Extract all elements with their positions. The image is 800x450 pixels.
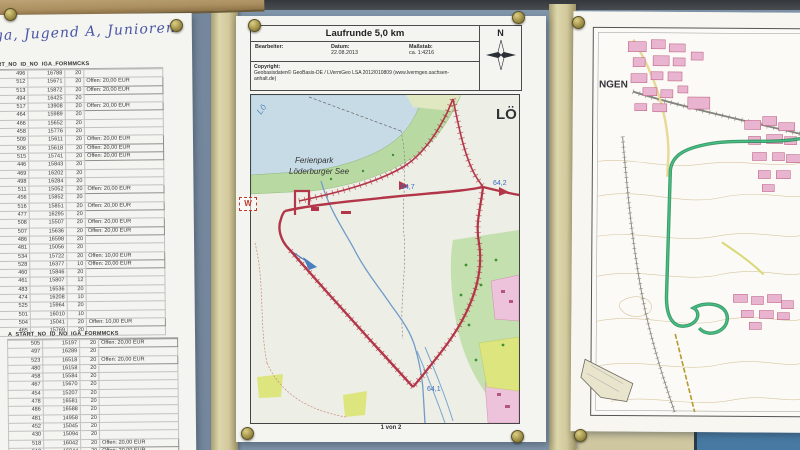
cell: 15872 [28, 86, 65, 95]
cell: 16295 [29, 211, 66, 220]
pin-icon [574, 429, 587, 442]
cell: 20 [81, 439, 100, 447]
cell: 481 [0, 244, 30, 253]
km-marker-64-2: 64,2 [493, 180, 507, 187]
cell: 20 [67, 318, 86, 326]
cell: 16598 [29, 236, 66, 245]
cell: 464 [0, 112, 28, 121]
cell: 15611 [28, 136, 65, 145]
cell: 15670 [43, 381, 80, 390]
cell: 20 [80, 414, 99, 422]
cell: 20 [66, 219, 85, 227]
cell: 467 [8, 382, 43, 391]
cell: 15618 [29, 144, 66, 153]
cell: 15852 [29, 194, 66, 203]
cell: 481 [8, 415, 43, 424]
cell: 16208 [30, 294, 67, 303]
cell: 15989 [28, 111, 65, 120]
cell: 20 [66, 227, 85, 235]
cell: 20 [80, 389, 99, 397]
cell: 516 [0, 203, 29, 212]
cell: 20 [66, 144, 85, 152]
cell: 20 [67, 244, 86, 252]
overview-map-sheet: NGEN [571, 11, 800, 433]
cell: 12 [67, 277, 86, 285]
cell: 15843 [29, 161, 66, 170]
left-table-1: ART_NO ID_NO IGA_FORMMCKS 49616788205121… [0, 59, 166, 336]
cell: 10 [67, 260, 86, 268]
cell: 461 [0, 278, 30, 287]
cell: 512 [0, 78, 28, 87]
cell: 10 [67, 310, 86, 318]
cell: 20 [65, 70, 84, 78]
cell: 15636 [29, 227, 66, 236]
cell: 20 [80, 422, 99, 430]
cell: 15851 [29, 203, 66, 212]
cell: 430 [9, 431, 44, 440]
cell: 15197 [43, 340, 80, 349]
cell: 474 [0, 294, 30, 303]
cell: 16588 [43, 406, 80, 415]
cell: 501 [0, 311, 30, 320]
map-title-block: Laufrunde 5,0 km Bearbeiter: Datum: 22.0… [250, 25, 522, 91]
cell: 486 [8, 406, 43, 415]
cell: 20 [65, 94, 84, 102]
cell: 20 [67, 269, 86, 277]
cell: 20 [80, 373, 99, 381]
cell: 20 [67, 302, 86, 310]
cell: 483 [0, 286, 30, 295]
cell: 509 [0, 137, 29, 146]
pin-icon [512, 11, 525, 24]
cell: 16010 [30, 310, 67, 319]
cell: 505 [8, 340, 43, 349]
left-table-2: A START_NO ID_NO IGA_FORMMCKS 5051519720… [7, 329, 179, 450]
cell: 508 [0, 220, 29, 229]
cell: 20 [66, 236, 85, 244]
cell: 452 [8, 423, 43, 432]
cell: 496 [0, 70, 28, 79]
cell: 15741 [29, 153, 66, 162]
cell: 15056 [30, 244, 67, 253]
results-sheet: ga, Jugend A, Junioren ART_NO ID_NO IGA_… [0, 13, 196, 450]
cell: 498 [0, 178, 29, 187]
pin-icon [241, 427, 254, 440]
overview-map-canvas: NGEN [571, 11, 800, 433]
cell: 20 [66, 211, 85, 219]
cell: 497 [8, 348, 43, 357]
pin-icon [4, 8, 17, 21]
cell: 20 [66, 169, 85, 177]
cell: 15045 [43, 423, 80, 432]
cell: 456 [0, 195, 29, 204]
cell: 15094 [44, 431, 81, 440]
pin-icon [572, 16, 585, 29]
cell: 454 [8, 390, 43, 399]
cell: 20 [66, 186, 85, 194]
cell: 15052 [29, 186, 66, 195]
cell: 20 [65, 86, 84, 94]
resort-label-line2: Löderburger See [289, 167, 350, 176]
cell: 16202 [29, 169, 66, 178]
cell: 16581 [43, 398, 80, 407]
cell: 16788 [28, 70, 65, 79]
compass-icon: N [480, 26, 521, 90]
cell: 20 [65, 136, 84, 144]
cell: 20 [80, 398, 99, 406]
cell: 15846 [30, 269, 67, 278]
cell: 460 [0, 269, 30, 278]
resort-label-line1: Ferienpark [295, 156, 334, 165]
cell: 20 [80, 406, 99, 414]
km-marker-64-7: 64,7 [401, 184, 415, 191]
handwritten-note: ga, Jugend A, Junioren [0, 20, 176, 44]
pin-icon [248, 19, 261, 32]
massstab-field: Maßstab: ca. 1:4216 [409, 44, 434, 56]
cell: 506 [0, 145, 29, 154]
cell: 20 [65, 78, 84, 86]
offen-cell: Offen: 20,00 EUR [100, 446, 179, 450]
page-indicator: 1 von 2 [236, 425, 546, 431]
cell: 15964 [30, 302, 67, 311]
cell: 469 [0, 170, 29, 179]
cell: 16425 [28, 95, 65, 104]
cell: 20 [66, 177, 85, 185]
cell: 458 [8, 373, 43, 382]
cell: 16377 [30, 261, 67, 270]
cell: 20 [65, 111, 84, 119]
cell: 15041 [30, 319, 67, 328]
cell: 534 [0, 253, 30, 262]
datum-field: Datum: 22.08.2013 [331, 44, 358, 56]
cell: 486 [0, 236, 30, 245]
cell: 16518 [43, 356, 80, 365]
cell: 525 [0, 302, 30, 311]
cell: 15207 [43, 389, 80, 398]
town-label-partial: NGEN [599, 79, 628, 90]
cell: 15584 [43, 373, 80, 382]
copyright-block: Copyright: Geobasisdaten© GeoBasis-DE / … [251, 62, 479, 90]
cell: 494 [0, 95, 28, 104]
cell: 20 [66, 153, 85, 161]
cell: 20 [65, 103, 84, 111]
cell: 20 [66, 194, 85, 202]
cell: 15652 [28, 120, 65, 129]
cell: 15507 [29, 219, 66, 228]
map-title: Laufrunde 5,0 km [251, 26, 479, 42]
cell: 16042 [44, 439, 81, 448]
board-frame-post-left [211, 4, 238, 450]
cell: 15671 [28, 78, 65, 87]
pin-icon [170, 19, 183, 32]
cell: 15807 [30, 277, 67, 286]
cell: 16158 [43, 365, 80, 374]
town-label: LÖ [496, 106, 517, 123]
pin-icon [511, 430, 524, 443]
cell: 15722 [30, 252, 67, 261]
cell: 16289 [43, 348, 80, 357]
cell: 480 [8, 365, 43, 374]
cell: 518 [9, 440, 44, 449]
cell: 20 [66, 202, 85, 210]
cell: 515 [0, 153, 29, 162]
cell: 16536 [30, 285, 67, 294]
cell: 458 [0, 128, 28, 137]
cell: 478 [8, 398, 43, 407]
cell: 10 [67, 294, 86, 302]
cell: 513 [0, 87, 28, 96]
cell: 13908 [28, 103, 65, 112]
cell: 16284 [29, 178, 66, 187]
cell: 20 [80, 356, 99, 364]
cell: 511 [0, 186, 29, 195]
cell: 20 [65, 119, 84, 127]
board-frame-top-dark [225, 0, 800, 10]
cell: 20 [80, 381, 99, 389]
notice-board: ga, Jugend A, Junioren ART_NO ID_NO IGA_… [0, 0, 800, 450]
start-marker: W [239, 197, 257, 211]
cell: 504 [0, 319, 30, 328]
cell: 20 [66, 161, 85, 169]
cell: 20 [80, 364, 99, 372]
cell: 20 [81, 431, 100, 439]
cell: 507 [0, 228, 29, 237]
cell: 20 [80, 339, 99, 347]
cell: 14958 [43, 414, 80, 423]
cell: 20 [67, 252, 86, 260]
cell: 466 [0, 120, 28, 129]
cell: 20 [80, 348, 99, 356]
cell: 477 [0, 211, 29, 220]
cell: 446 [0, 161, 29, 170]
cell: 523 [8, 357, 43, 366]
cell: 528 [0, 261, 30, 270]
route-map-canvas: Ferienpark Löderburger See Lö LÖ 64,7 64… [250, 94, 520, 424]
cell: 20 [67, 285, 86, 293]
cell: 20 [65, 128, 84, 136]
route-map-sheet: Laufrunde 5,0 km Bearbeiter: Datum: 22.0… [236, 16, 546, 442]
bearbeiter-field: Bearbeiter: [255, 44, 283, 50]
cell: 517 [0, 103, 28, 112]
cell: 15776 [28, 128, 65, 137]
km-marker-64-1: 64,1 [427, 386, 441, 393]
